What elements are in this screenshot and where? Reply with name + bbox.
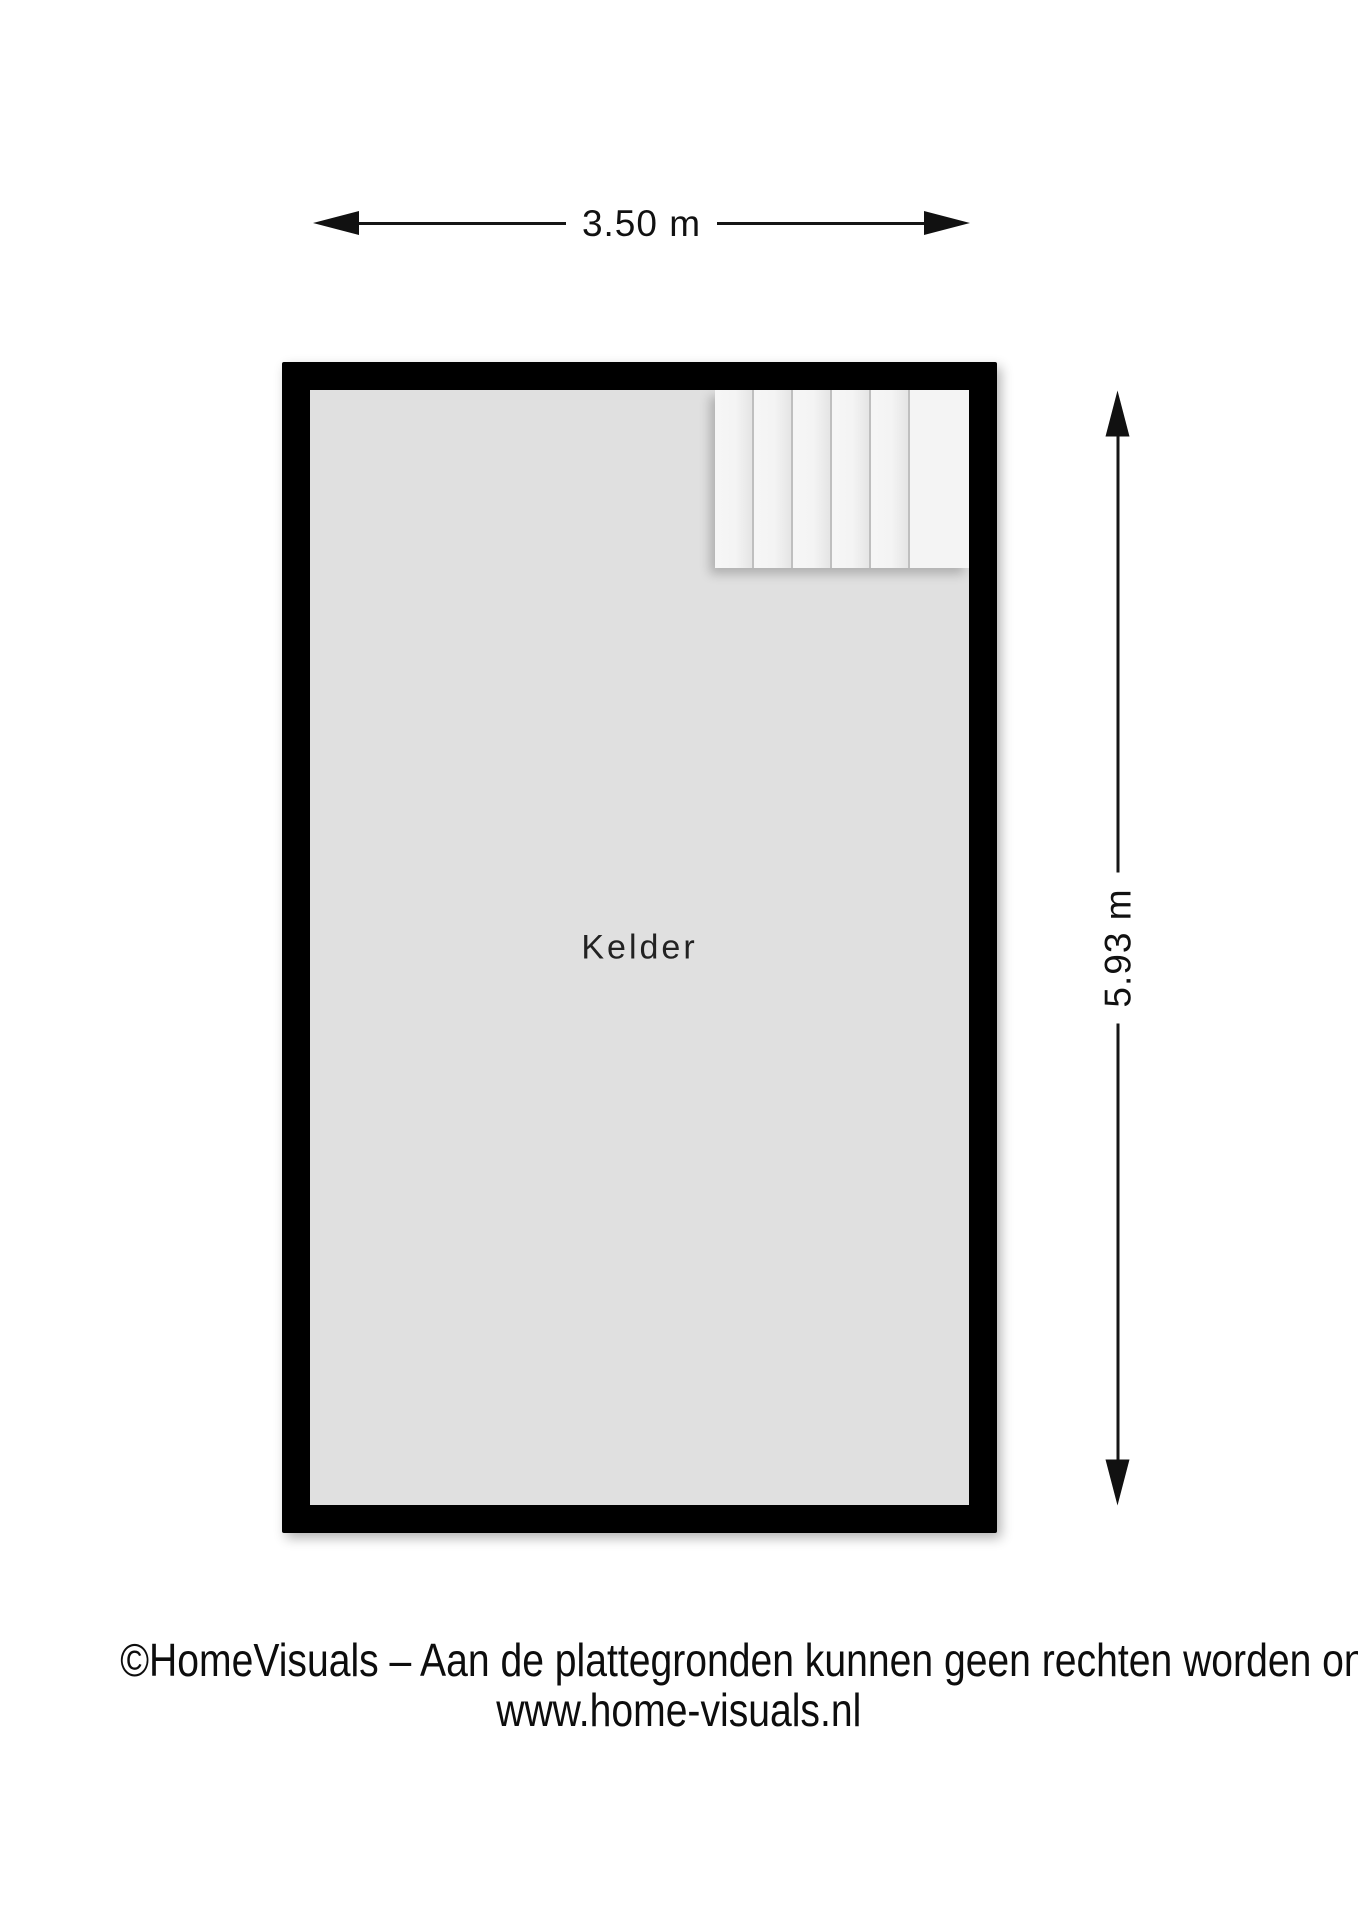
room-floor: Kelder [310,390,969,1505]
website-text: www.home-visuals.nl [496,1687,861,1733]
arrow-right-icon [924,211,970,235]
stair-step [754,390,793,568]
height-dimension: 5.93 m [1106,391,1130,1506]
stair-step [793,390,832,568]
footer: ©HomeVisuals – Aan de plattegronden kunn… [0,1637,1358,1733]
arrow-up-icon [1106,391,1130,437]
height-dimension-label: 5.93 m [1099,872,1136,1023]
stair-step [910,390,969,568]
arrow-down-icon [1106,1460,1130,1506]
dimension-line [1116,1024,1119,1460]
width-dimension: 3.50 m [313,211,970,235]
width-dimension-label: 3.50 m [566,205,717,242]
stairs [715,390,969,568]
arrow-left-icon [313,211,359,235]
dimension-line [1116,437,1119,873]
copyright-text: ©HomeVisuals – Aan de plattegronden kunn… [120,1637,1358,1683]
dimension-line [717,222,924,225]
floorplan-canvas: 3.50 m 5.93 m Kelder ©HomeVisuals – Aan … [0,0,1358,1920]
stair-step [832,390,871,568]
room-label: Kelder [581,928,697,967]
stair-step [715,390,754,568]
room-walls: Kelder [282,362,997,1533]
stair-step [871,390,910,568]
dimension-line [359,222,566,225]
